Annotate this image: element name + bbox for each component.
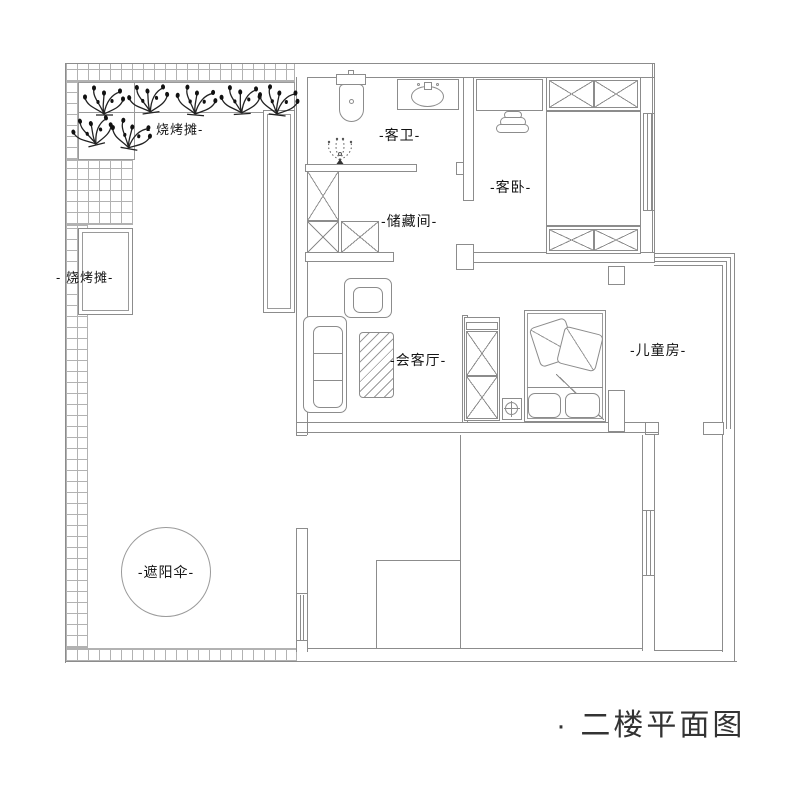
guest-bed [546, 111, 641, 226]
floor-plan: -遮阳伞- - 烧烤摊- - 烧烤摊- -客卫- -客卧- -储藏间- -会客厅… [0, 0, 800, 800]
wall-cap [462, 315, 468, 316]
terrace-tiles [65, 648, 297, 662]
storage-cabinet [341, 221, 379, 253]
floor-drain-plant-icon [322, 134, 358, 166]
bottom-outer-wall [65, 661, 737, 662]
wardrobe-cell [594, 80, 638, 108]
guest-bedroom-right-wall [652, 63, 653, 254]
bay-window-line [730, 257, 731, 429]
top-outer-wall [65, 63, 655, 64]
faucet-icon [424, 82, 432, 90]
right-room-wall [654, 435, 655, 651]
window-line [303, 595, 304, 640]
room-label-guest-bath: -客卫- [379, 125, 420, 145]
kids-left-wall [462, 315, 463, 423]
armchair-seat [353, 287, 383, 313]
bottom-room-wall [308, 648, 642, 649]
window-cap [296, 640, 307, 641]
bottom-inner-wall [296, 422, 658, 423]
nightstand-cross [504, 408, 520, 409]
wall-step [703, 422, 724, 435]
wall-step [608, 266, 625, 285]
bottom-strip-wall [654, 650, 722, 651]
plant-icon [254, 81, 303, 126]
left-wall-cap [296, 528, 307, 529]
room-label-guest-bedroom: -客卧- [490, 177, 531, 197]
umbrella-circle: -遮阳伞- [121, 527, 211, 617]
room-label-umbrella: -遮阳伞- [138, 562, 194, 582]
column [456, 244, 474, 270]
left-wall [296, 77, 297, 435]
kids-wardrobe-cell [466, 331, 498, 376]
wall-cap [463, 200, 474, 201]
window-line [651, 113, 652, 211]
window-cap [643, 113, 655, 114]
nightstand-cross [511, 401, 512, 417]
sofa-cushion-line [314, 380, 342, 381]
left-wall [296, 528, 297, 652]
toilet-drain-icon [349, 99, 354, 104]
window-cap [642, 575, 655, 576]
room-label-kids-room: -儿童房- [630, 340, 686, 360]
room-label-reception: -会客厅- [390, 350, 446, 370]
window-cap [642, 510, 655, 511]
desk [476, 79, 543, 111]
right-outer-wall [734, 253, 735, 662]
kids-wardrobe-shelf [466, 322, 498, 330]
window-cap [643, 210, 655, 211]
cabinet-cell [549, 229, 594, 251]
left-wall [307, 528, 308, 652]
bay-window-line [726, 261, 727, 429]
cabinet-cell [594, 229, 638, 251]
stair-box [376, 560, 461, 649]
faucet-handle-icon [417, 83, 420, 86]
storage-cabinet [307, 171, 339, 221]
window-line [643, 113, 644, 211]
bay-window-line [654, 261, 727, 262]
bath-bedroom-wall [463, 77, 464, 200]
pillow-icon [528, 393, 561, 418]
wardrobe-cell [549, 80, 594, 108]
pillow-icon [565, 393, 600, 418]
plan-title: · 二楼平面图 [556, 700, 745, 744]
kids-wardrobe-cell [466, 376, 498, 419]
storage-bottom-wall [305, 252, 394, 262]
faucet-handle-icon [436, 83, 439, 86]
sofa-cushion-line [314, 353, 342, 354]
window-line [646, 510, 647, 575]
bottom-inner-wall [296, 432, 658, 433]
wall-step [645, 422, 659, 435]
left-outer-wall [65, 63, 66, 663]
chair-icon [496, 124, 529, 133]
left-wall-cap [296, 435, 307, 436]
window-cap [296, 593, 307, 594]
planter-counter-inner [267, 114, 291, 309]
bay-window-line [654, 253, 735, 254]
sofa-seat [313, 326, 343, 408]
window-line [650, 510, 651, 575]
terrace-tiles [65, 160, 133, 225]
wall-step [608, 390, 625, 432]
room-label-bbq-left: - 烧烤摊- [56, 267, 113, 286]
room-label-bbq-top: - 烧烤摊- [146, 119, 203, 138]
bath-bedroom-wall [473, 77, 474, 200]
room-label-storage: -储藏间- [381, 211, 437, 231]
bay-window-line [654, 257, 731, 258]
guest-bedroom-right-wall [654, 63, 655, 254]
rug-icon [359, 332, 394, 398]
bay-window-line [722, 265, 723, 652]
window-line [647, 113, 648, 211]
storage-cabinet [307, 221, 339, 253]
wall-bump [456, 162, 464, 175]
terrace-tiles [65, 63, 295, 82]
right-room-wall [642, 435, 643, 651]
bay-window-line [654, 265, 723, 266]
window-line [300, 595, 301, 640]
